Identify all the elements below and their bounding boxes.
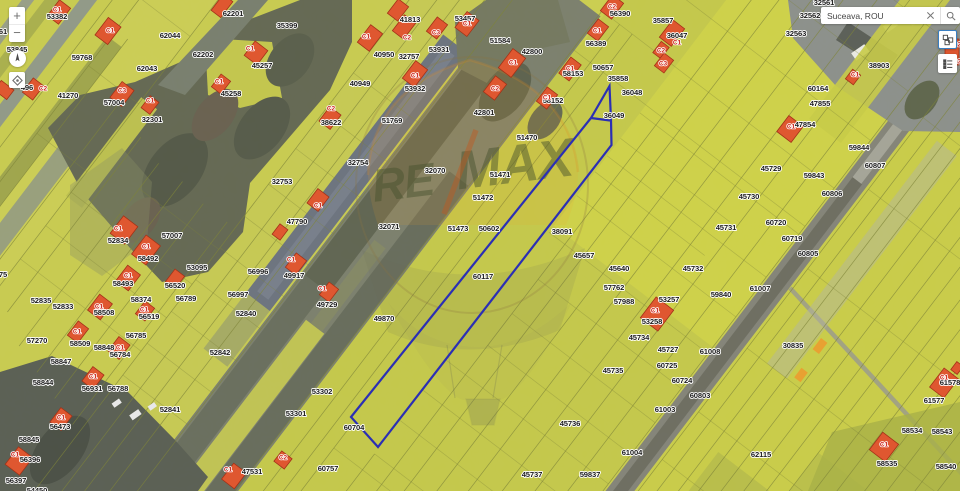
svg-text:35857: 35857: [653, 16, 674, 25]
svg-text:45657: 45657: [574, 251, 595, 260]
svg-text:60725: 60725: [657, 361, 678, 370]
svg-text:45727: 45727: [658, 345, 679, 354]
svg-text:45736: 45736: [560, 419, 581, 428]
svg-text:C1: C1: [215, 79, 224, 86]
svg-text:56996: 56996: [248, 267, 269, 276]
svg-text:45731: 45731: [716, 223, 737, 232]
svg-text:52835: 52835: [31, 296, 52, 305]
svg-text:42801: 42801: [474, 108, 495, 117]
svg-text:C3: C3: [118, 88, 127, 95]
svg-text:35399: 35399: [277, 21, 298, 30]
svg-text:58534: 58534: [902, 426, 923, 435]
svg-text:C2: C2: [491, 86, 500, 93]
svg-text:62202: 62202: [193, 50, 214, 59]
svg-text:C1: C1: [89, 374, 98, 381]
svg-text:50657: 50657: [593, 63, 614, 72]
svg-text:52841: 52841: [160, 405, 181, 414]
svg-text:58540: 58540: [936, 462, 957, 471]
svg-text:60720: 60720: [766, 218, 787, 227]
svg-text:57007: 57007: [162, 231, 183, 240]
svg-text:41813: 41813: [400, 15, 421, 24]
svg-text:53931: 53931: [429, 45, 450, 54]
svg-text:45735: 45735: [603, 366, 624, 375]
svg-text:C1: C1: [593, 28, 602, 35]
svg-text:58844: 58844: [33, 378, 54, 387]
svg-text:59768: 59768: [72, 53, 93, 62]
svg-text:C1: C1: [246, 46, 255, 53]
svg-text:C1: C1: [880, 442, 889, 449]
svg-text:61004: 61004: [622, 448, 643, 457]
svg-text:60704: 60704: [344, 423, 365, 432]
svg-text:54450: 54450: [27, 486, 48, 491]
svg-text:C1: C1: [53, 7, 62, 14]
svg-text:52842: 52842: [210, 348, 231, 357]
svg-text:51473: 51473: [448, 224, 469, 233]
svg-text:52834: 52834: [108, 236, 129, 245]
svg-text:C1: C1: [314, 203, 323, 210]
svg-text:45640: 45640: [609, 264, 630, 273]
svg-text:C1: C1: [224, 467, 233, 474]
svg-text:32561: 32561: [814, 0, 835, 7]
svg-text:58845: 58845: [19, 435, 40, 444]
svg-text:C3: C3: [432, 30, 441, 37]
svg-text:45732: 45732: [683, 264, 704, 273]
svg-text:59844: 59844: [849, 143, 870, 152]
svg-text:45729: 45729: [761, 164, 782, 173]
svg-text:C3: C3: [659, 61, 668, 68]
svg-text:62043: 62043: [137, 64, 158, 73]
svg-text:C1: C1: [851, 72, 860, 79]
svg-text:45257: 45257: [252, 61, 273, 70]
svg-text:C1: C1: [362, 34, 371, 41]
svg-text:45730: 45730: [739, 192, 760, 201]
svg-text:32753: 32753: [272, 177, 293, 186]
svg-text:58535: 58535: [877, 459, 898, 468]
svg-text:30835: 30835: [783, 341, 804, 350]
svg-text:C1: C1: [787, 124, 796, 131]
svg-text:38091: 38091: [552, 227, 573, 236]
svg-text:61007: 61007: [750, 284, 771, 293]
svg-text:C2: C2: [279, 455, 288, 462]
svg-text:61003: 61003: [655, 405, 676, 414]
svg-text:C1: C1: [57, 415, 66, 422]
svg-text:57004: 57004: [104, 98, 125, 107]
svg-text:60724: 60724: [672, 376, 693, 385]
svg-text:59840: 59840: [711, 290, 732, 299]
svg-text:C1: C1: [140, 307, 149, 314]
svg-text:36048: 36048: [622, 88, 643, 97]
svg-text:53301: 53301: [286, 409, 307, 418]
svg-text:60805: 60805: [798, 249, 819, 258]
svg-text:32757: 32757: [399, 52, 420, 61]
svg-text:42800: 42800: [522, 47, 543, 56]
svg-text:40950: 40950: [374, 50, 395, 59]
svg-text:49917: 49917: [284, 271, 305, 280]
svg-text:47855: 47855: [810, 99, 831, 108]
svg-text:56520: 56520: [165, 281, 186, 290]
svg-text:C1: C1: [411, 73, 420, 80]
svg-text:60719: 60719: [782, 234, 803, 243]
svg-text:32070: 32070: [425, 166, 446, 175]
svg-text:56397: 56397: [6, 476, 27, 485]
svg-text:52833: 52833: [53, 302, 74, 311]
svg-text:49729: 49729: [317, 300, 338, 309]
svg-text:62115: 62115: [751, 450, 772, 459]
svg-text:C2: C2: [608, 4, 617, 11]
svg-text:58509: 58509: [70, 339, 91, 348]
svg-text:57988: 57988: [614, 297, 635, 306]
svg-text:32754: 32754: [348, 158, 369, 167]
svg-text:51769: 51769: [382, 116, 403, 125]
svg-text:62044: 62044: [160, 31, 181, 40]
svg-text:45734: 45734: [629, 333, 650, 342]
svg-text:47854: 47854: [795, 120, 816, 129]
svg-text:38622: 38622: [321, 118, 342, 127]
svg-text:32301: 32301: [142, 115, 163, 124]
svg-text:50602: 50602: [479, 224, 500, 233]
svg-text:56931: 56931: [82, 384, 103, 393]
svg-text:60803: 60803: [690, 391, 711, 400]
svg-text:C1: C1: [543, 95, 552, 102]
svg-text:60117: 60117: [473, 272, 493, 281]
svg-text:56473: 56473: [50, 422, 71, 431]
svg-text:C2: C2: [327, 106, 336, 113]
svg-text:61: 61: [0, 27, 8, 36]
svg-text:C1: C1: [142, 244, 151, 251]
svg-text:57270: 57270: [27, 336, 48, 345]
svg-text:32563: 32563: [786, 29, 807, 38]
svg-text:56396: 56396: [20, 455, 41, 464]
svg-text:58847: 58847: [51, 357, 72, 366]
svg-text:C1: C1: [114, 226, 123, 233]
svg-text:45737: 45737: [522, 470, 543, 479]
svg-text:C1: C1: [566, 66, 575, 73]
svg-text:C1: C1: [318, 286, 327, 293]
svg-text:53257: 53257: [659, 295, 680, 304]
svg-text:C1: C1: [509, 60, 518, 67]
svg-text:C2: C2: [39, 86, 48, 93]
svg-text:C1: C1: [673, 40, 682, 47]
svg-text:C1: C1: [95, 304, 104, 311]
svg-text:58493: 58493: [113, 279, 134, 288]
svg-text:38903: 38903: [869, 61, 890, 70]
svg-text:53095: 53095: [187, 263, 208, 272]
svg-text:52840: 52840: [236, 309, 257, 318]
svg-text:58374: 58374: [131, 295, 152, 304]
svg-text:C1: C1: [940, 375, 949, 382]
svg-text:C1: C1: [463, 21, 472, 28]
svg-text:35858: 35858: [608, 74, 629, 83]
svg-text:62201: 62201: [223, 9, 244, 18]
svg-text:53302: 53302: [312, 387, 333, 396]
svg-text:60757: 60757: [318, 464, 339, 473]
svg-text:49870: 49870: [374, 314, 395, 323]
svg-text:56788: 56788: [108, 384, 129, 393]
svg-text:59843: 59843: [804, 171, 825, 180]
svg-text:60806: 60806: [822, 189, 843, 198]
svg-text:57762: 57762: [604, 283, 625, 292]
svg-text:56389: 56389: [586, 39, 607, 48]
svg-text:C1: C1: [124, 273, 133, 280]
svg-text:36049: 36049: [604, 111, 625, 120]
svg-text:C1: C1: [651, 308, 660, 315]
svg-text:53258: 53258: [642, 317, 663, 326]
svg-text:C1: C1: [287, 257, 296, 264]
svg-text:51472: 51472: [473, 193, 494, 202]
svg-text:45258: 45258: [221, 89, 242, 98]
svg-text:RE: RE: [369, 152, 439, 211]
svg-text:56789: 56789: [176, 294, 197, 303]
svg-text:53932: 53932: [405, 84, 426, 93]
svg-text:58492: 58492: [138, 254, 159, 263]
svg-text:56997: 56997: [228, 290, 249, 299]
svg-text:58543: 58543: [932, 427, 953, 436]
svg-text:41270: 41270: [58, 91, 79, 100]
svg-text:40949: 40949: [350, 79, 371, 88]
svg-text:C2: C2: [657, 48, 666, 55]
svg-text:60807: 60807: [865, 161, 886, 170]
svg-text:C1: C1: [146, 98, 155, 105]
svg-text:61008: 61008: [700, 347, 721, 356]
svg-text:C2: C2: [403, 35, 412, 42]
svg-text:51584: 51584: [490, 36, 511, 45]
svg-text:51470: 51470: [517, 133, 538, 142]
svg-text:75: 75: [0, 270, 8, 279]
svg-text:C1: C1: [11, 452, 20, 459]
svg-text:C1: C1: [106, 28, 115, 35]
svg-text:61577: 61577: [924, 396, 945, 405]
svg-text:32562: 32562: [800, 11, 821, 20]
svg-text:60164: 60164: [808, 84, 829, 93]
svg-text:C1: C1: [73, 329, 82, 336]
svg-text:59837: 59837: [580, 470, 601, 479]
svg-text:47531: 47531: [242, 467, 263, 476]
svg-text:47790: 47790: [287, 217, 308, 226]
svg-text:56785: 56785: [126, 331, 147, 340]
svg-text:C1: C1: [116, 345, 125, 352]
svg-text:51471: 51471: [490, 170, 511, 179]
svg-text:32071: 32071: [379, 222, 400, 231]
